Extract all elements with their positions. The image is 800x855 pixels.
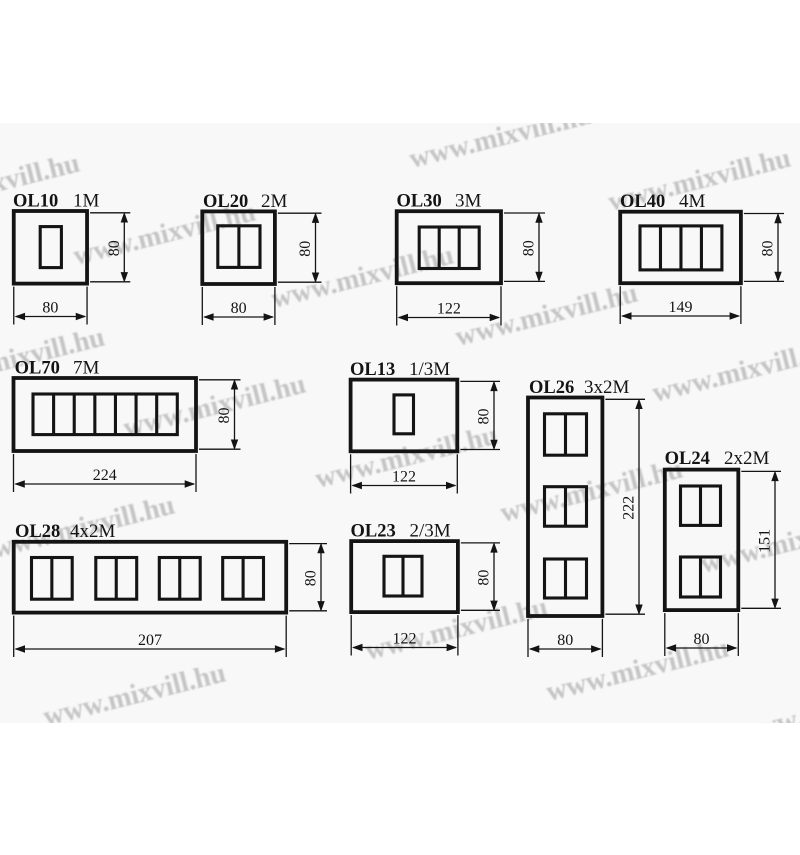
svg-text:OL30: OL30 [397, 192, 442, 212]
svg-text:OL40: OL40 [620, 192, 665, 212]
svg-text:80: 80 [216, 408, 233, 424]
svg-text:OL10: OL10 [13, 192, 58, 212]
svg-text:151: 151 [757, 529, 774, 553]
svg-text:80: 80 [476, 570, 493, 586]
svg-text:222: 222 [621, 496, 638, 520]
svg-text:4M: 4M [679, 191, 706, 212]
svg-text:4x2M: 4x2M [70, 521, 116, 542]
svg-text:OL13: OL13 [350, 360, 395, 380]
svg-text:80: 80 [557, 632, 573, 649]
svg-text:7M: 7M [73, 358, 100, 379]
svg-text:3x2M: 3x2M [584, 377, 630, 398]
svg-text:OL70: OL70 [15, 359, 60, 379]
svg-text:OL26: OL26 [529, 378, 574, 398]
svg-text:OL20: OL20 [203, 192, 248, 212]
svg-text:149: 149 [669, 299, 693, 316]
svg-text:80: 80 [231, 300, 247, 317]
svg-text:80: 80 [694, 631, 710, 648]
svg-text:OL24: OL24 [665, 449, 710, 469]
svg-text:122: 122 [393, 631, 417, 648]
svg-text:80: 80 [42, 300, 58, 317]
svg-text:OL23: OL23 [351, 522, 396, 542]
svg-text:2x2M: 2x2M [724, 448, 770, 469]
svg-text:122: 122 [392, 469, 416, 486]
svg-text:3M: 3M [455, 191, 482, 212]
svg-text:1/3M: 1/3M [409, 359, 450, 380]
svg-text:80: 80 [106, 240, 123, 256]
svg-text:2M: 2M [261, 191, 288, 212]
svg-text:OL28: OL28 [15, 522, 60, 542]
svg-text:80: 80 [303, 570, 320, 586]
svg-text:80: 80 [297, 241, 314, 257]
svg-text:80: 80 [521, 240, 538, 256]
svg-text:80: 80 [760, 240, 777, 256]
svg-text:224: 224 [93, 467, 117, 484]
svg-text:80: 80 [476, 408, 493, 424]
svg-text:122: 122 [437, 301, 461, 318]
svg-text:1M: 1M [73, 191, 100, 212]
svg-text:2/3M: 2/3M [410, 521, 451, 542]
svg-text:207: 207 [138, 632, 162, 649]
